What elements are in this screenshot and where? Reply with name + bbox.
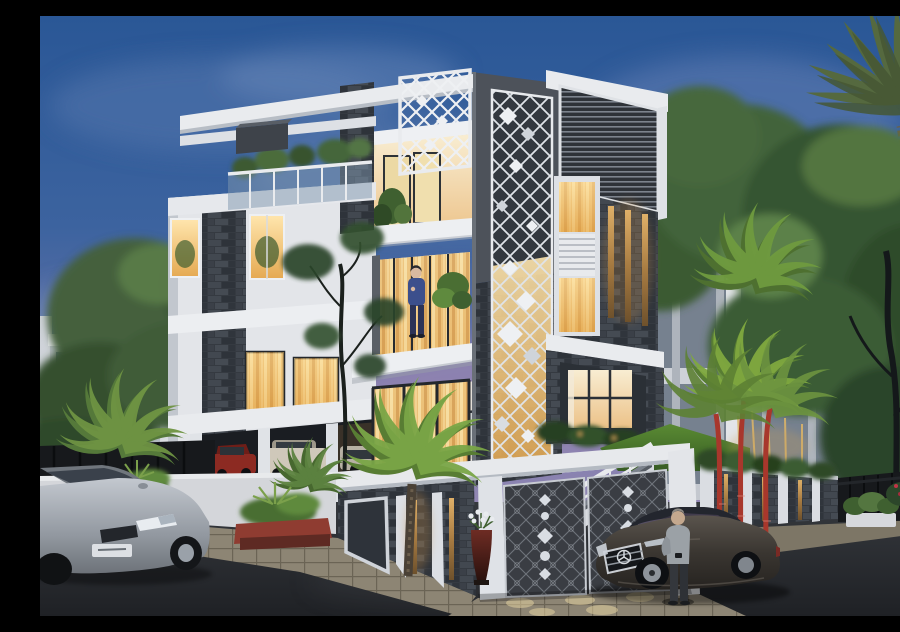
villa-dusk-rendering: Dusk architectural rendering of a four-s… xyxy=(40,16,900,616)
lit-slits xyxy=(602,199,654,326)
right-block xyxy=(546,70,668,444)
trellis-panel xyxy=(400,70,470,174)
gate-leaf-left xyxy=(504,478,586,597)
stacked-window-recess xyxy=(554,176,600,336)
